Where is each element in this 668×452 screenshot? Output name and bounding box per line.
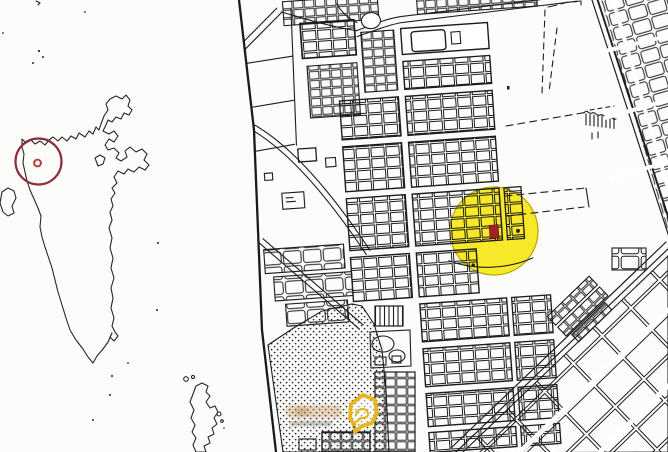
stippled-open-area bbox=[268, 304, 389, 452]
street-linework bbox=[229, 0, 668, 452]
dashed-planned-roads bbox=[505, 1, 614, 216]
map-screenshot bbox=[0, 0, 668, 452]
property-marker bbox=[489, 225, 499, 239]
detail-map[interactable] bbox=[0, 0, 668, 452]
panel-divider bbox=[239, 0, 276, 452]
hatched-block bbox=[375, 306, 403, 326]
